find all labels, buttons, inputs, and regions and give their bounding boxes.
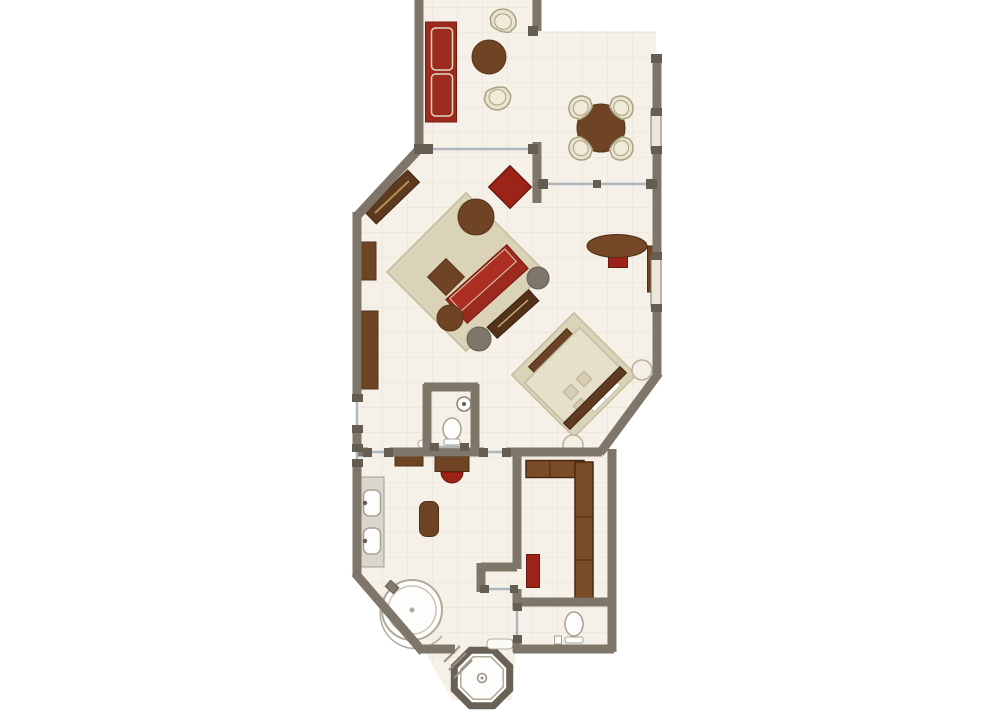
wall-post — [510, 585, 518, 593]
wall-post — [651, 146, 662, 154]
wall-post — [479, 448, 488, 457]
wall-post — [384, 448, 393, 457]
side-table-round — [527, 267, 549, 289]
vanity-faucet — [363, 539, 367, 543]
wall-post — [651, 108, 662, 116]
wall-post — [480, 585, 489, 593]
wall-post — [352, 425, 363, 433]
wall-post — [352, 459, 363, 467]
closet-bench-red — [527, 555, 540, 588]
bath-bench — [420, 502, 439, 537]
wardrobe-right — [575, 462, 593, 598]
vanity-faucet — [363, 501, 367, 505]
nightstand — [632, 360, 652, 380]
wc-paper-holder — [555, 636, 562, 644]
wall-post — [593, 180, 601, 188]
round-stool — [437, 305, 463, 331]
wall-post — [460, 443, 469, 451]
wall-post — [651, 252, 662, 260]
wall-post — [538, 179, 548, 189]
wc-toilet-tank — [565, 637, 583, 643]
wall-post — [646, 179, 657, 189]
powder-toilet-bowl — [443, 418, 461, 440]
sitting-coffee-table — [472, 40, 506, 74]
wall-post — [513, 603, 522, 611]
wc-toilet-bowl — [565, 612, 583, 636]
shower-mat — [487, 639, 513, 649]
wall-console — [360, 242, 376, 280]
living-coffee-table — [458, 199, 494, 235]
shower-drain-dot — [481, 677, 484, 680]
wall-post — [430, 443, 439, 451]
side-table-round — [467, 327, 491, 351]
dressing-desk — [435, 457, 469, 472]
wall-console — [362, 311, 378, 389]
powder-basin-drain — [462, 402, 466, 406]
tub-drain — [410, 608, 415, 613]
wall-post — [651, 304, 662, 312]
wall-post — [424, 144, 433, 154]
window — [651, 111, 661, 150]
floor-plan-canvas — [0, 0, 1000, 713]
wall-post — [352, 394, 363, 402]
wall-post — [414, 144, 425, 154]
floor-plan-svg — [0, 0, 1000, 713]
wall-post — [513, 635, 522, 643]
wall-post — [528, 144, 538, 154]
wall-post — [352, 444, 363, 452]
wall-post — [502, 448, 511, 457]
wall-post — [651, 54, 662, 63]
oval-writing-desk — [587, 235, 647, 258]
window — [651, 256, 661, 306]
wall-post — [363, 448, 372, 457]
wall-post — [528, 26, 538, 36]
powder-toilet-tank — [444, 439, 460, 445]
